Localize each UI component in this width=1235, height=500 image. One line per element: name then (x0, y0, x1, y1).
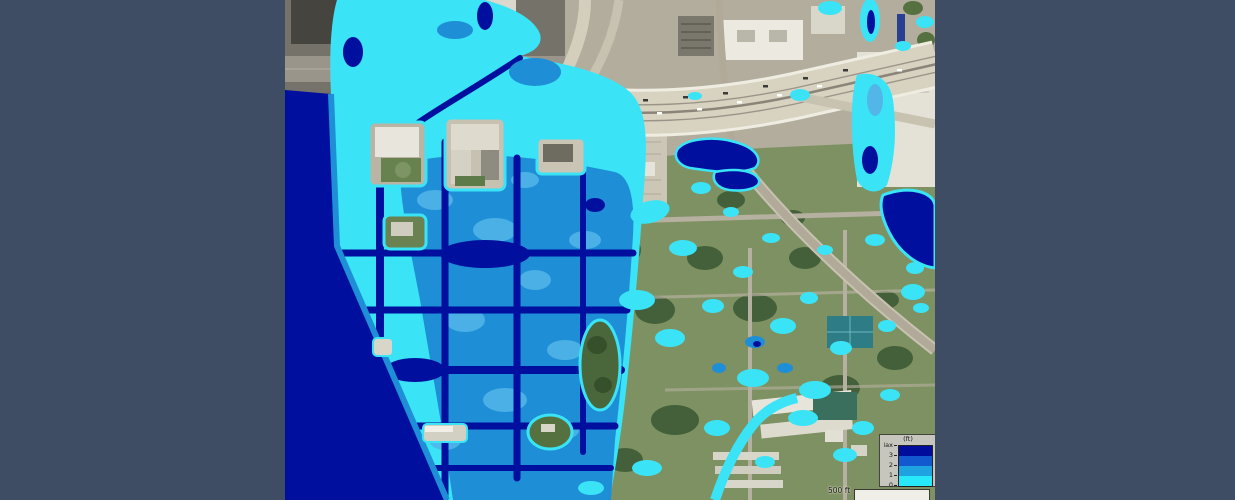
legend-band-3-2 (899, 456, 932, 466)
scale-bar-label: 500 ft (828, 486, 850, 495)
scale-bar: 500 ft (828, 486, 930, 500)
legend-color-ramp (898, 445, 933, 487)
legend-tick: 3 (889, 452, 897, 458)
depth-legend: (ft) Max 3 2 1 0 (879, 434, 935, 487)
flood-map-viewport[interactable]: (ft) Max 3 2 1 0 500 ft (285, 0, 935, 500)
app-background: (ft) Max 3 2 1 0 500 ft (0, 0, 1235, 500)
aerial-flood-imagery (285, 0, 935, 500)
legend-tick: 2 (889, 462, 897, 468)
legend-band-1-0 (899, 476, 932, 486)
legend-tick: 1 (889, 472, 897, 478)
scale-bar-rule (854, 489, 930, 500)
legend-band-2-1 (899, 466, 932, 476)
legend-band-max-3 (899, 446, 932, 456)
legend-tick: Max (884, 442, 897, 448)
